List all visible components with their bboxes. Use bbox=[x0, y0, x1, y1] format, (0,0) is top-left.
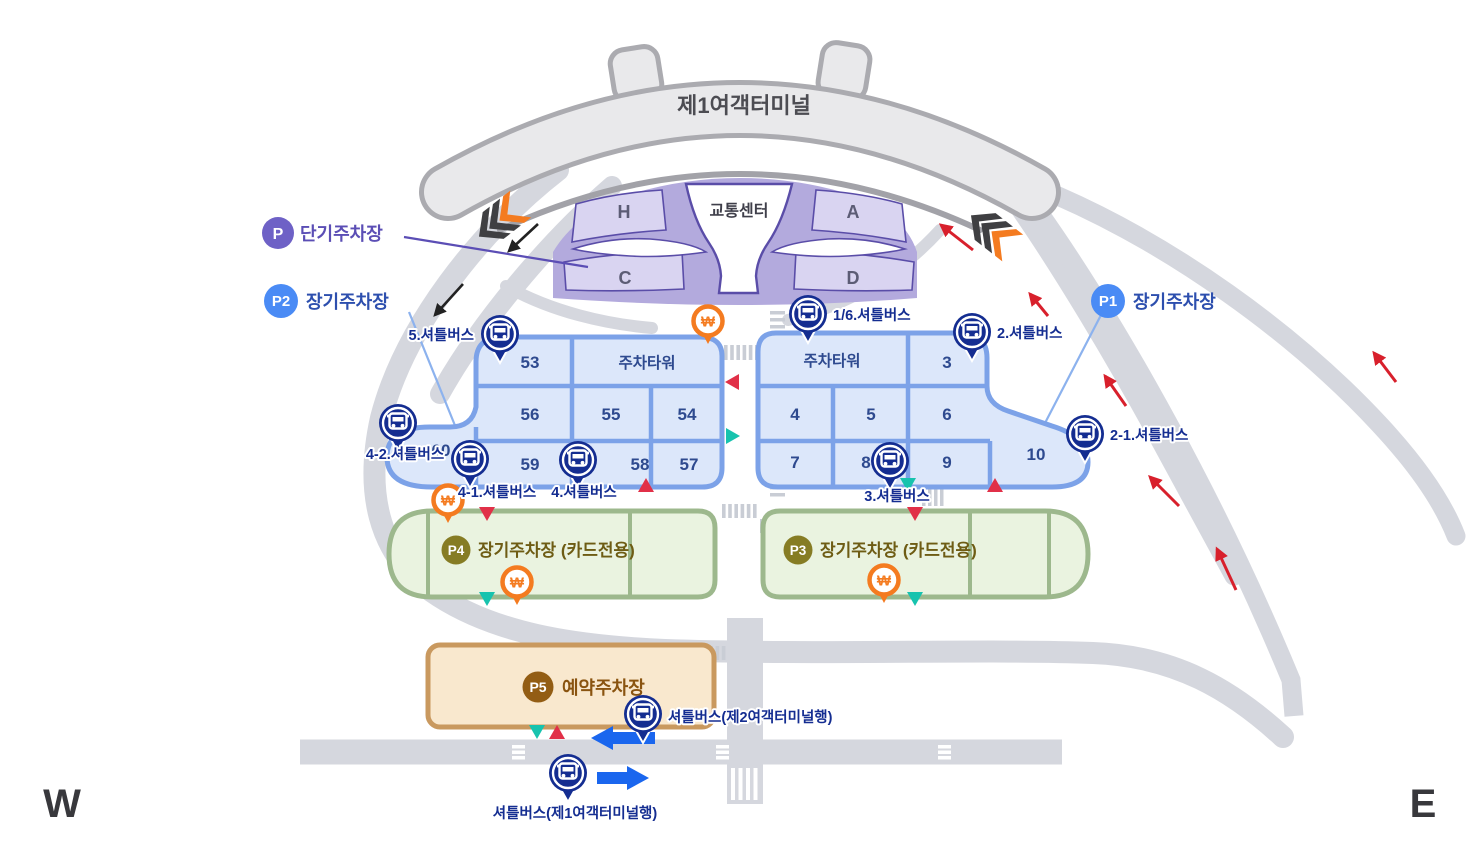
compass-west: W bbox=[43, 782, 81, 826]
cell-59: 59 bbox=[521, 455, 540, 474]
west-parking-tower: 주차타워 bbox=[618, 354, 675, 372]
p3-card-only-area: P3 장기주차장 (카드전용) bbox=[763, 511, 1088, 597]
lane-dash-bottom-3 bbox=[938, 745, 951, 760]
cell-4: 4 bbox=[790, 405, 800, 424]
section-d-label: D bbox=[847, 268, 860, 288]
bus-stop-label-42: 4-2.셔틀버스 bbox=[366, 446, 444, 463]
airport-parking-map: 제1여객터미널 교통센터 H A C D bbox=[0, 0, 1478, 858]
bus-stop-label-16: 1/6.셔틀버스 bbox=[833, 307, 911, 324]
west-parking-block: 53 주차타워 56 55 54 60 59 58 57 bbox=[387, 337, 722, 487]
cell-3: 3 bbox=[942, 353, 951, 372]
p3-badge-label: P3 bbox=[790, 543, 807, 558]
terminal-title: 제1여객터미널 bbox=[677, 93, 811, 118]
cell-5: 5 bbox=[866, 405, 875, 424]
section-h-label: H bbox=[618, 202, 631, 222]
bus-stop-label-3: 3.셔틀버스 bbox=[864, 488, 929, 505]
cell-10: 10 bbox=[1027, 445, 1046, 464]
east-parking-tower: 주차타워 bbox=[803, 352, 860, 370]
cell-53: 53 bbox=[521, 353, 540, 372]
p4-card-only-area: P4 장기주차장 (카드전용) bbox=[389, 511, 715, 597]
teal-marker-p5 bbox=[529, 725, 545, 739]
p1-label: 장기주차장 bbox=[1133, 292, 1216, 312]
p5-badge-label: P5 bbox=[529, 679, 546, 695]
p4-label: 장기주차장 (카드전용) bbox=[478, 541, 635, 560]
won-icon: ₩ bbox=[441, 493, 456, 510]
cell-58: 58 bbox=[631, 455, 650, 474]
cell-7: 7 bbox=[790, 453, 799, 472]
bus-stop-label-41: 4-1.셔틀버스 bbox=[458, 484, 536, 501]
crosswalk-corridor-top bbox=[724, 345, 759, 360]
red-marker-left bbox=[725, 374, 739, 390]
crosswalk-corridor-mid bbox=[722, 504, 757, 518]
blue-arrow-right bbox=[597, 766, 649, 790]
won-icon: ₩ bbox=[701, 314, 716, 331]
bus-stop-label-21: 2-1.셔틀버스 bbox=[1110, 427, 1188, 444]
p-badge-label: P bbox=[273, 226, 284, 243]
cell-9: 9 bbox=[942, 453, 951, 472]
red-arrow-3 bbox=[1374, 353, 1396, 382]
cell-6: 6 bbox=[942, 405, 951, 424]
p3-label: 장기주차장 (카드전용) bbox=[820, 541, 977, 560]
p4-badge-label: P4 bbox=[448, 543, 465, 558]
section-c-label: C bbox=[619, 268, 632, 288]
bus-stop-label-t1: 셔틀버스(제1여객터미널행) bbox=[493, 804, 658, 822]
lane-dash-bottom-1 bbox=[512, 745, 525, 760]
bus-stop-pin-t1 bbox=[549, 754, 587, 802]
cell-8: 8 bbox=[861, 453, 870, 472]
cell-55: 55 bbox=[602, 405, 621, 424]
p5-label: 예약주차장 bbox=[562, 677, 645, 698]
lane-marks-east-top bbox=[770, 311, 785, 329]
bus-icon bbox=[549, 754, 587, 802]
p2-label: 장기주차장 bbox=[306, 292, 389, 312]
compass-east: E bbox=[1410, 782, 1437, 826]
red-arrow-2 bbox=[1030, 294, 1048, 316]
won-icon: ₩ bbox=[877, 573, 892, 590]
map-canvas: 제1여객터미널 교통센터 H A C D bbox=[0, 0, 1478, 858]
cell-54: 54 bbox=[678, 405, 697, 424]
teal-marker-right bbox=[726, 428, 740, 444]
p2-badge-label: P2 bbox=[272, 293, 290, 310]
cell-57: 57 bbox=[680, 455, 699, 474]
p1-badge-label: P1 bbox=[1099, 293, 1117, 310]
bus-stop-label-4: 4.셔틀버스 bbox=[551, 484, 616, 501]
section-a-label: A bbox=[847, 202, 860, 222]
east-parking-block: 주차타워 3 4 5 6 7 8 9 10 bbox=[758, 333, 1088, 487]
won-icon: ₩ bbox=[510, 575, 525, 592]
lane-dash-bottom-2 bbox=[716, 745, 729, 760]
bus-stop-label-t2: 셔틀버스(제2여객터미널행) bbox=[668, 708, 833, 726]
bus-stop-label-2: 2.셔틀버스 bbox=[997, 325, 1062, 342]
short-term-parking-area: 교통센터 H A C D bbox=[553, 178, 917, 305]
cell-56: 56 bbox=[521, 405, 540, 424]
short-term-label: 단기주차장 bbox=[300, 224, 383, 244]
red-arrow-1 bbox=[941, 225, 973, 250]
transport-center-label: 교통센터 bbox=[710, 202, 769, 220]
bus-stop-label-5: 5.셔틀버스 bbox=[409, 327, 474, 344]
